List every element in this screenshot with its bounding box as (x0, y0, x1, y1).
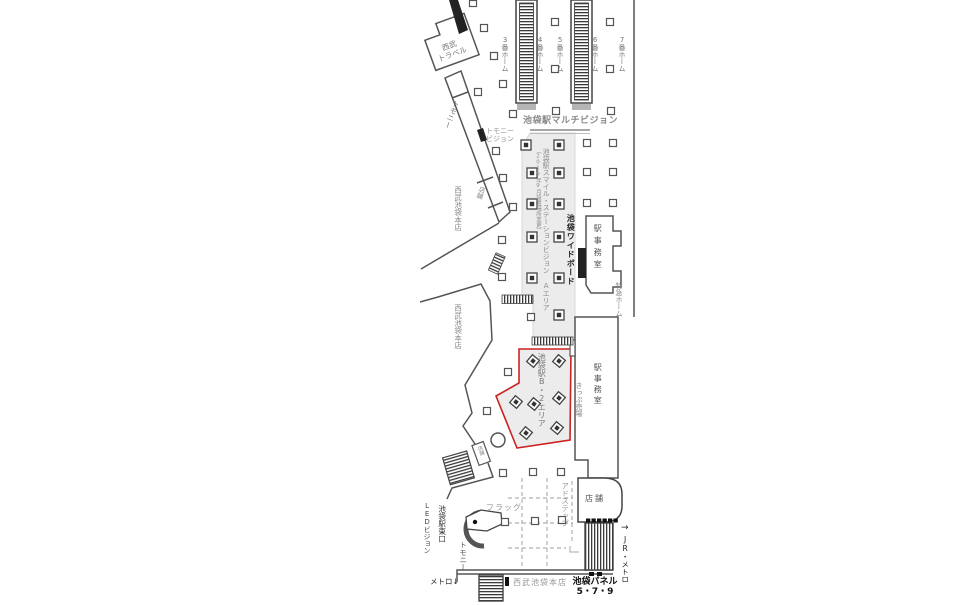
platform-5-label: 5番ホーム (556, 36, 564, 72)
platform-4-label: 4番ホーム (536, 36, 544, 72)
led-vision-label: LEDビジョン (423, 502, 431, 554)
metro-exit-label: メトロ↓ (430, 578, 459, 587)
jr-metro-arrow: → (621, 523, 629, 533)
platform-6-label: 6番ホーム (591, 36, 599, 72)
seibu-store-mid-label: 西武池袋本店 (453, 304, 462, 349)
led-vision-dot (473, 520, 477, 524)
limited-express-platform-label: 特急ホーム (615, 282, 623, 317)
east-exit-label: 池袋駅東口 (437, 505, 446, 543)
b2-area-label: 池袋駅B・2エリア (537, 353, 546, 427)
ikebukuro-panel-label: 池袋パネル5・7・9 (568, 577, 622, 598)
platform-stairs (516, 0, 592, 110)
map-shapes (0, 0, 960, 605)
platform-7-label: 7番ホーム (618, 36, 626, 72)
platform-3-label: 3番ホーム (501, 36, 509, 72)
multivision-label: 池袋駅マルチビジョン (523, 116, 618, 126)
seibu-store-bottom-label: 西武池袋本店 (513, 578, 567, 587)
station-office-lower-label: 駅事務室 (593, 363, 602, 407)
seibu-store-upper-label: 西武池袋本店 (453, 186, 462, 231)
station-office-upper-label: 駅事務室 (593, 224, 602, 272)
led-vision-sign (466, 510, 502, 531)
jr-metro-label: JR・メトロ (620, 535, 629, 583)
ad-step-label: アドステップ (560, 482, 569, 527)
round-pillar (491, 433, 505, 447)
tomony-lower-label: トモニー (458, 541, 467, 571)
ticket-office-label: きっぷ売場 (575, 382, 583, 417)
flag-label: フラッグ (486, 503, 522, 512)
store-lower-label: 店舗 (585, 494, 605, 503)
wide-board-label: 池袋ワイドボード (566, 214, 575, 286)
station-floor-map: 西武トラベル トモニー トモニービジョン 池袋駅マルチビジョン 3番ホーム 4番… (0, 0, 960, 605)
smile-station-vision-label: 池袋駅スマイル・ステーションビジョン Aエリア （2019年9月設置場所変更） (534, 148, 550, 343)
wide-board-screen (578, 248, 586, 278)
adstep-leader (570, 546, 579, 552)
tomony-vision-label: トモニービジョン (486, 127, 514, 143)
